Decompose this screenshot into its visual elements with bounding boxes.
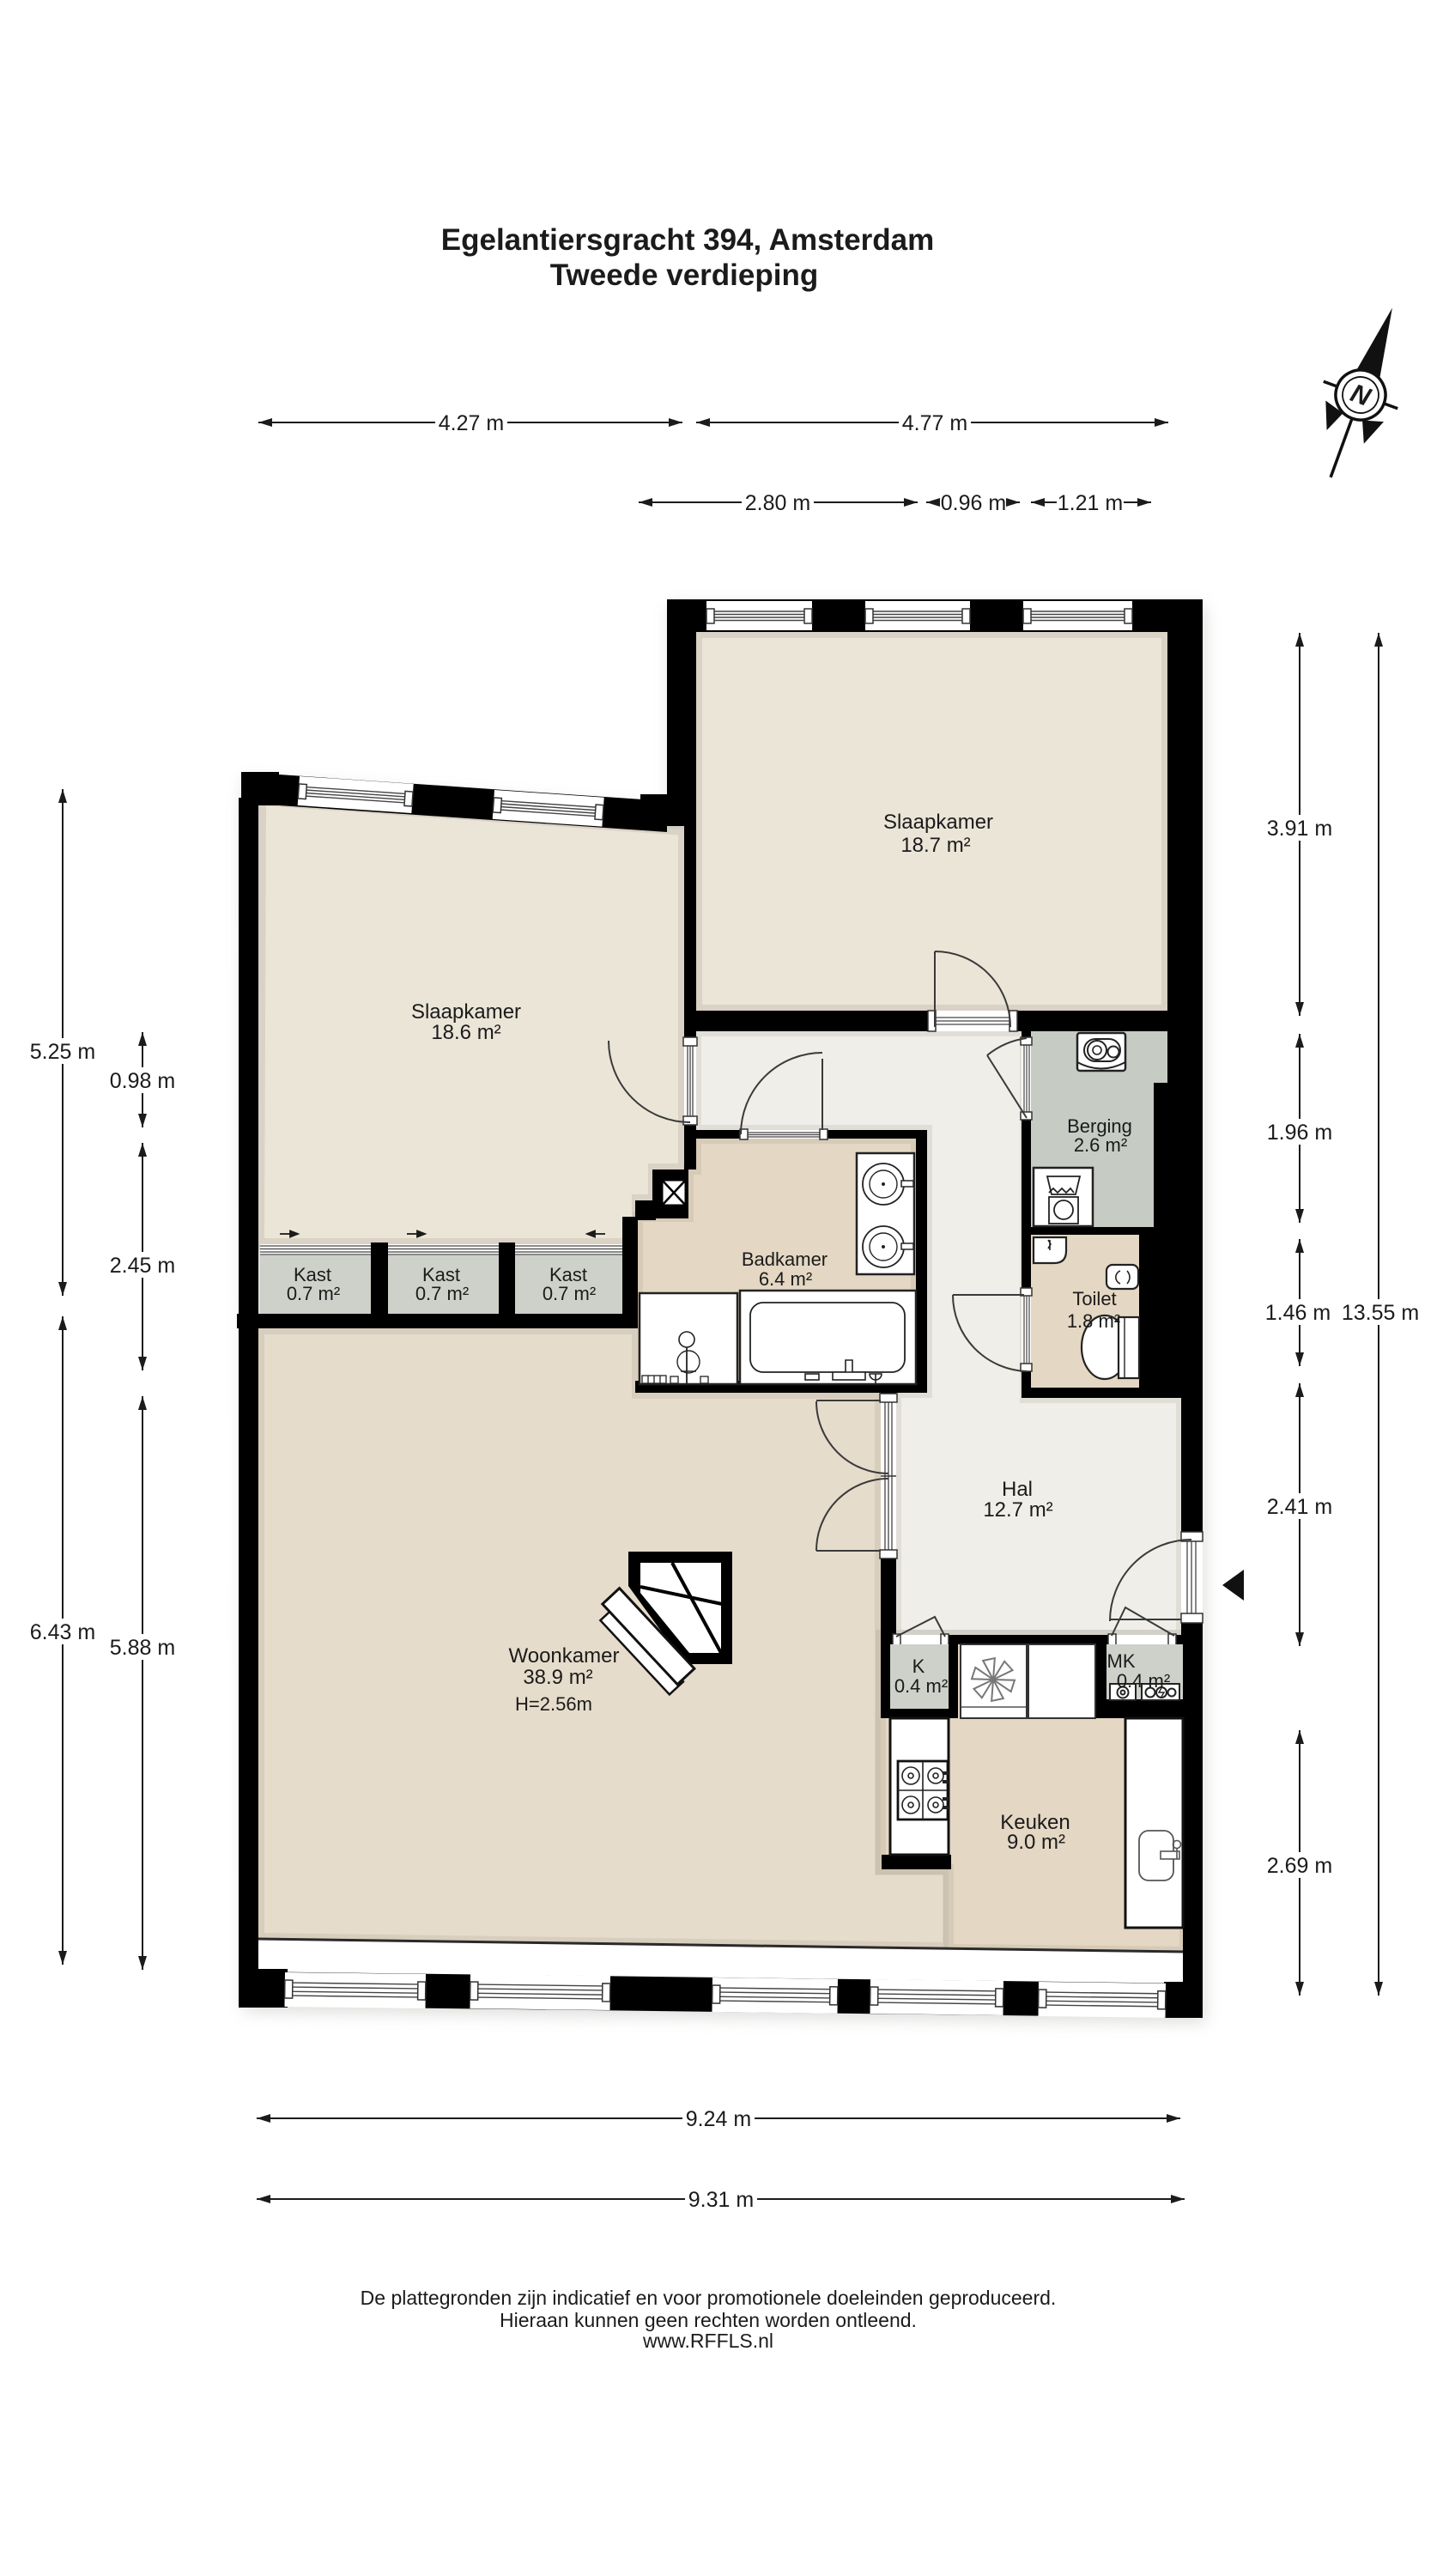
svg-text:18.7 m²: 18.7 m²: [900, 834, 970, 857]
svg-text:H=2.56m: H=2.56m: [515, 1693, 592, 1715]
svg-text:Egelantiersgracht 394, Amsterd: Egelantiersgracht 394, Amsterdam: [441, 223, 935, 257]
svg-text:5.88 m: 5.88 m: [110, 1636, 175, 1660]
svg-text:4.77 m: 4.77 m: [902, 411, 967, 435]
svg-text:4.27 m: 4.27 m: [439, 411, 504, 435]
svg-text:38.9 m²: 38.9 m²: [523, 1666, 592, 1689]
svg-text:0.7 m²: 0.7 m²: [287, 1283, 340, 1304]
svg-text:1.8 m²: 1.8 m²: [1067, 1310, 1120, 1332]
svg-text:0.98 m: 0.98 m: [110, 1069, 175, 1093]
svg-text:13.55 m: 13.55 m: [1342, 1301, 1419, 1325]
svg-text:5.25 m: 5.25 m: [30, 1040, 95, 1064]
svg-text:Tweede verdieping: Tweede verdieping: [550, 258, 819, 292]
svg-text:2.45 m: 2.45 m: [110, 1254, 175, 1278]
svg-text:2.69 m: 2.69 m: [1267, 1854, 1332, 1878]
svg-text:6.43 m: 6.43 m: [30, 1620, 95, 1644]
svg-text:MK: MK: [1107, 1650, 1136, 1672]
svg-text:1.46 m: 1.46 m: [1265, 1301, 1331, 1325]
svg-text:18.6 m²: 18.6 m²: [431, 1021, 500, 1044]
svg-text:6.4 m²: 6.4 m²: [759, 1268, 812, 1290]
svg-text:Slaapkamer: Slaapkamer: [883, 811, 993, 834]
svg-text:Woonkamer: Woonkamer: [509, 1644, 620, 1668]
svg-text:De plattegronden zijn indicati: De plattegronden zijn indicatief en voor…: [361, 2287, 1057, 2309]
svg-text:2.41 m: 2.41 m: [1267, 1495, 1332, 1519]
svg-text:9.31 m: 9.31 m: [688, 2188, 754, 2212]
svg-text:12.7 m²: 12.7 m²: [983, 1498, 1052, 1522]
svg-text:K: K: [912, 1656, 925, 1677]
svg-text:Badkamer: Badkamer: [742, 1249, 828, 1270]
svg-text:2.80 m: 2.80 m: [745, 491, 810, 515]
svg-text:1.21 m: 1.21 m: [1058, 491, 1123, 515]
svg-text:3.91 m: 3.91 m: [1267, 817, 1332, 841]
svg-text:0.7 m²: 0.7 m²: [415, 1283, 469, 1304]
svg-text:9.0 m²: 9.0 m²: [1007, 1831, 1065, 1854]
svg-text:2.6 m²: 2.6 m²: [1074, 1134, 1127, 1156]
svg-text:www.RFFLS.nl: www.RFFLS.nl: [642, 2330, 773, 2352]
svg-text:1.96 m: 1.96 m: [1267, 1121, 1332, 1145]
svg-text:Slaapkamer: Slaapkamer: [411, 1000, 521, 1024]
svg-text:Hal: Hal: [1002, 1478, 1033, 1501]
svg-text:9.24 m: 9.24 m: [686, 2107, 751, 2131]
svg-text:0.4 m²: 0.4 m²: [1117, 1670, 1170, 1692]
svg-text:0.4 m²: 0.4 m²: [894, 1675, 948, 1697]
svg-text:Toilet: Toilet: [1072, 1288, 1116, 1309]
svg-text:Hieraan kunnen geen rechten wo: Hieraan kunnen geen rechten worden ontle…: [500, 2309, 917, 2331]
svg-text:0.7 m²: 0.7 m²: [543, 1283, 596, 1304]
svg-text:0.96 m: 0.96 m: [941, 491, 1006, 515]
